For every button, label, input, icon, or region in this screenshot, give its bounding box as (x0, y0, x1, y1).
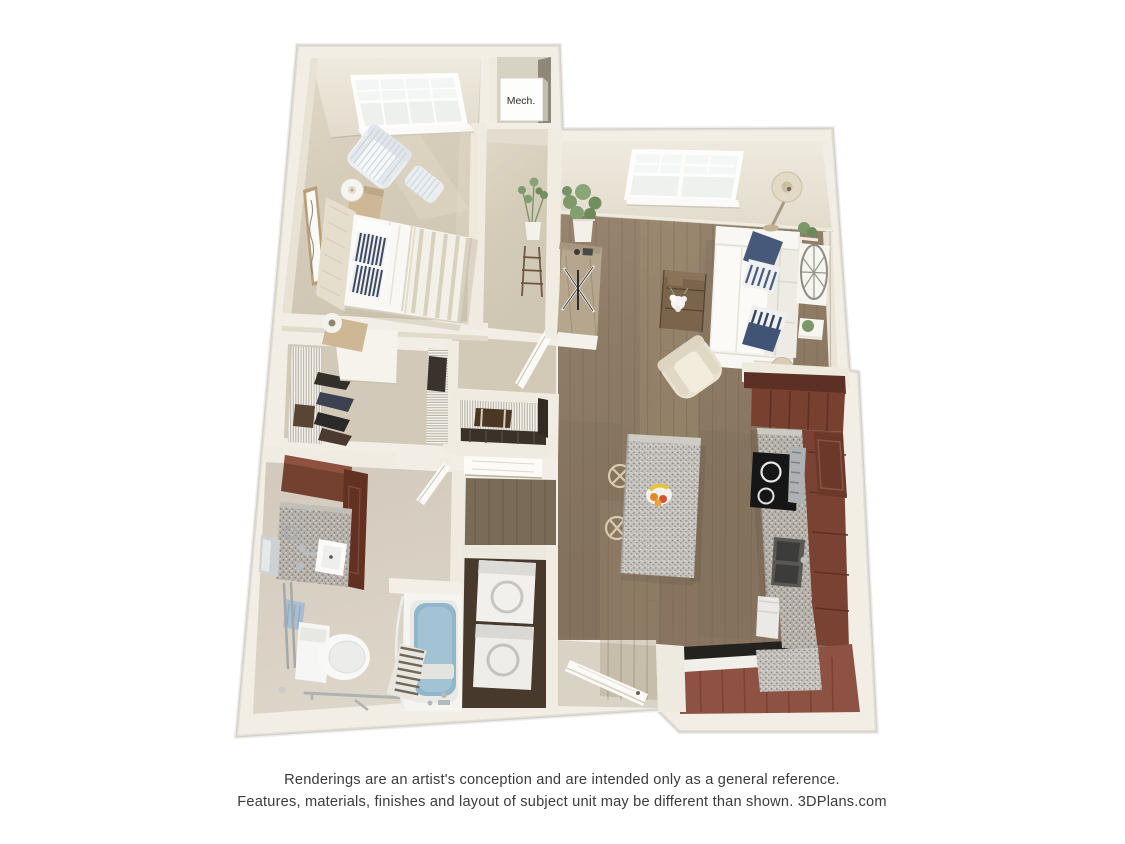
svg-text:Renderings are an artist's con: Renderings are an artist's conception an… (284, 772, 840, 788)
svg-text:Features, materials, finishes: Features, materials, finishes and layout… (237, 794, 886, 810)
svg-text:Mech.: Mech. (507, 95, 536, 107)
